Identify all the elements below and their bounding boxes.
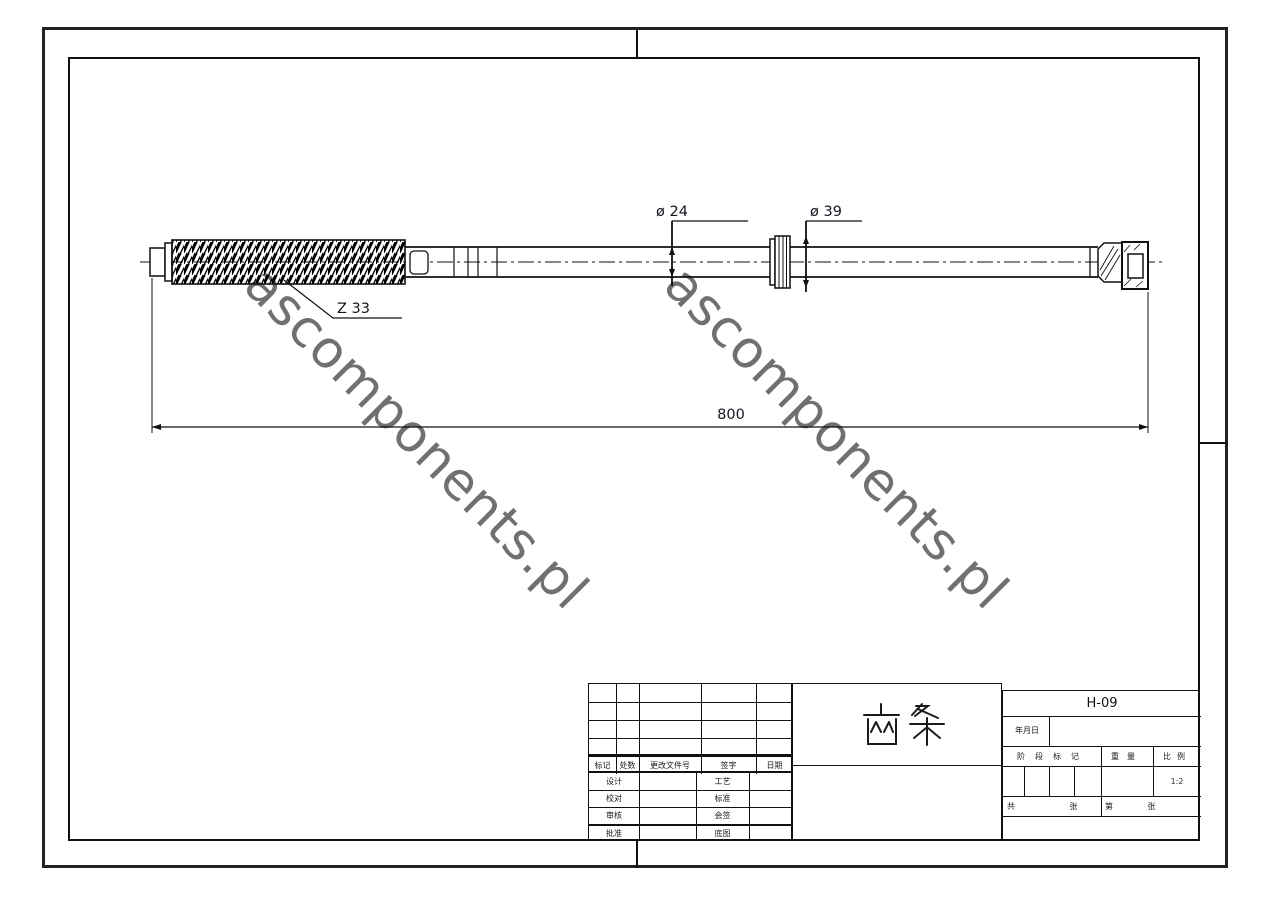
table-line xyxy=(589,807,793,808)
left-stud xyxy=(150,248,165,276)
sig-standard-label: 标准 xyxy=(696,794,749,803)
stage-mark-label: 阶段标记 xyxy=(1005,752,1101,761)
table-line xyxy=(1049,766,1050,796)
sig-approve-label: 批准 xyxy=(589,829,639,838)
table-line xyxy=(589,720,793,721)
table-line xyxy=(589,824,793,826)
table-line xyxy=(793,765,1003,766)
dim-label-800: 800 xyxy=(717,407,745,423)
table-line xyxy=(1049,716,1050,746)
leader-teeth-count: Z 33 xyxy=(284,280,402,318)
table-line xyxy=(639,773,640,841)
rev-header-mark: 标记 xyxy=(589,761,616,770)
table-line xyxy=(1003,746,1201,747)
left-step-band xyxy=(165,243,172,281)
shaft-flat-feature xyxy=(410,251,428,274)
dimension-diameter-24: ø 24 xyxy=(656,204,748,286)
socket-bore xyxy=(1128,254,1143,278)
signature-table: 设计 工艺 校对 标准 审核 会签 批准 底图 xyxy=(588,772,792,840)
dim-label-z33: Z 33 xyxy=(337,301,370,317)
table-line xyxy=(639,684,640,756)
table-line xyxy=(1003,816,1201,817)
part-name-box: 齿条 xyxy=(792,683,1002,840)
sig-check-label: 校对 xyxy=(589,794,639,803)
table-line xyxy=(701,684,702,756)
table-line xyxy=(1003,796,1201,797)
date-label: 年月日 xyxy=(1005,726,1049,735)
dim-label-d24: ø 24 xyxy=(656,204,688,220)
right-title-block: H-09 年月日 阶段标记 重量 比例 1:2 共 张 第 张 xyxy=(1002,690,1200,840)
rev-header-sign: 签字 xyxy=(701,761,756,770)
table-line xyxy=(589,702,793,703)
table-line xyxy=(1074,766,1075,796)
revision-table-empty-rows xyxy=(588,683,792,755)
shaft-body-lines xyxy=(405,247,1098,277)
scale-value: 1:2 xyxy=(1153,777,1201,786)
weight-label: 重量 xyxy=(1101,752,1153,761)
dim-label-d39: ø 39 xyxy=(810,204,842,220)
table-line xyxy=(1024,766,1025,796)
table-line xyxy=(749,773,750,841)
table-line xyxy=(616,684,617,756)
scale-label: 比例 xyxy=(1153,752,1201,761)
rev-header-docno: 更改文件号 xyxy=(639,761,701,770)
table-line xyxy=(589,790,793,791)
table-line xyxy=(1003,766,1201,767)
sig-audit-label: 审核 xyxy=(589,811,639,820)
rack-teeth-section xyxy=(172,240,405,284)
table-line xyxy=(589,738,793,739)
sig-process-label: 工艺 xyxy=(696,777,749,786)
sig-countersign-label: 会签 xyxy=(696,811,749,820)
dimension-diameter-39: ø 39 xyxy=(803,204,862,292)
sig-basemap-label: 底图 xyxy=(696,829,749,838)
sheet-number-label: 第 张 xyxy=(1105,802,1199,811)
table-line xyxy=(1003,716,1201,717)
revision-table-header: 标记 处数 更改文件号 签字 日期 xyxy=(588,755,792,772)
rev-header-date: 日期 xyxy=(756,761,793,770)
table-line xyxy=(756,684,757,756)
drawing-sheet: ascomponents.pl ascomponents.pl xyxy=(0,0,1272,898)
rev-header-count: 处数 xyxy=(616,761,639,770)
sig-design-label: 设计 xyxy=(589,777,639,786)
drawing-number: H-09 xyxy=(1003,696,1201,711)
sheets-total-label: 共 张 xyxy=(1007,802,1099,811)
dimension-length-800: 800 xyxy=(152,278,1148,433)
